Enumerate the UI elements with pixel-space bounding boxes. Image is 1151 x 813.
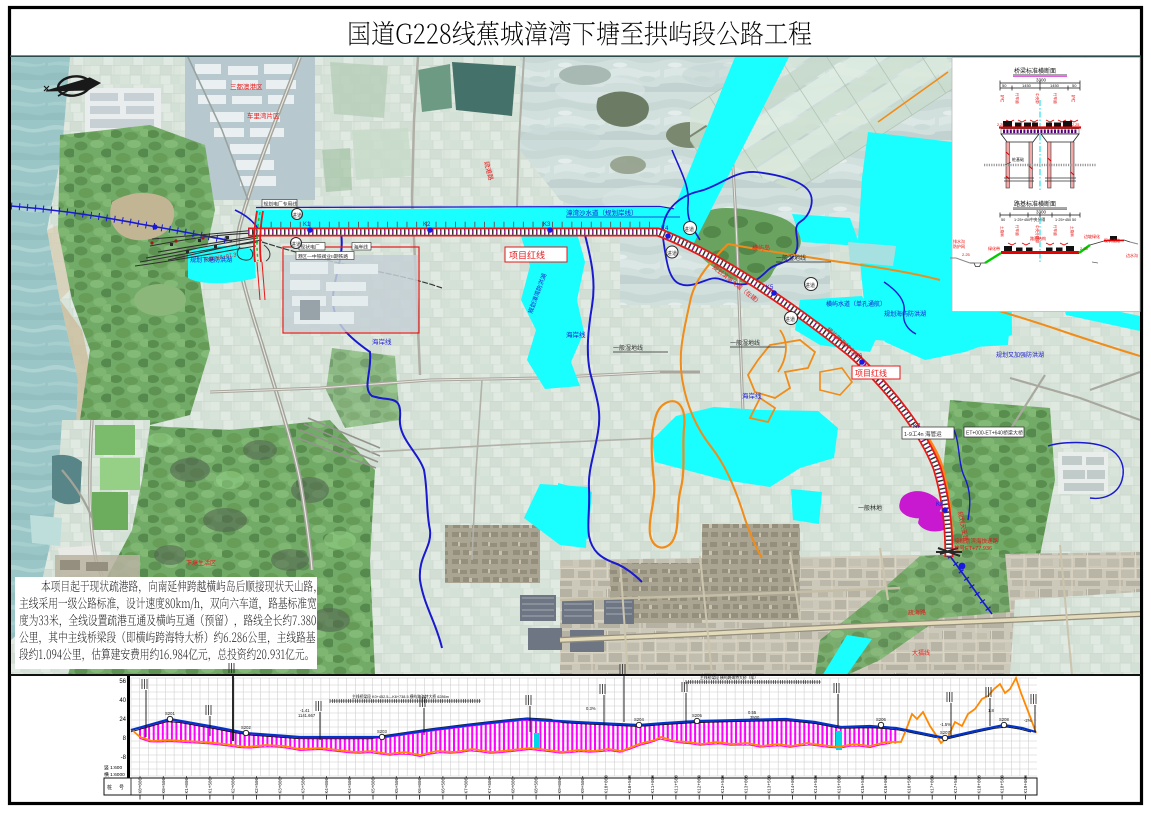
svg-text:S208: S208 [999, 717, 1009, 722]
svg-text:路基标准横断面: 路基标准横断面 [1014, 200, 1056, 208]
svg-text:主线桥梁段 横屿跨海特大桥（续）: 主线桥梁段 横屿跨海特大桥（续） [700, 675, 758, 680]
svg-text:K14+500: K14+500 [814, 775, 819, 794]
svg-text:边水沟: 边水沟 [1126, 252, 1138, 258]
svg-text:S206: S206 [876, 717, 886, 722]
svg-text:K12+000: K12+000 [698, 775, 703, 794]
svg-text:S204: S204 [634, 717, 644, 722]
svg-text:K3+000: K3+000 [278, 777, 283, 793]
svg-text:50: 50 [1072, 218, 1076, 222]
svg-text:边坡绿化: 边坡绿化 [1084, 233, 1100, 239]
svg-text:-8: -8 [121, 755, 127, 761]
svg-text:1450: 1450 [1022, 83, 1032, 88]
svg-text:K6+000: K6+000 [418, 777, 423, 793]
svg-text:1.8: 1.8 [988, 708, 994, 713]
svg-text:号: 号 [119, 785, 124, 791]
svg-text:K11+500: K11+500 [674, 775, 679, 794]
svg-text:土路肩: 土路肩 [1070, 226, 1075, 237]
svg-text:K1+000: K1+000 [185, 777, 190, 793]
svg-text:K15+500: K15+500 [861, 775, 866, 794]
svg-text:40: 40 [119, 698, 126, 704]
svg-text:中央带: 中央带 [1035, 93, 1040, 104]
svg-text:防护网: 防护网 [953, 243, 965, 249]
svg-text:K15+000: K15+000 [838, 775, 843, 794]
svg-text:-2%: -2% [1024, 718, 1032, 723]
svg-text:S203: S203 [377, 729, 387, 734]
svg-text:桥梁标准横断面: 桥梁标准横断面 [1014, 67, 1056, 75]
svg-text:K2+000: K2+000 [232, 777, 237, 793]
svg-text:S202: S202 [241, 725, 251, 730]
svg-text:K2+500: K2+500 [255, 777, 260, 793]
svg-text:K7+000: K7+000 [465, 777, 470, 793]
svg-text:K8+000: K8+000 [511, 777, 516, 793]
svg-text:K4+500: K4+500 [348, 777, 353, 793]
svg-text:竖 1:600: 竖 1:600 [104, 764, 122, 771]
svg-text:K5+500: K5+500 [395, 777, 400, 793]
svg-text:K5+000: K5+000 [372, 777, 377, 793]
svg-text:K14+000: K14+000 [791, 775, 796, 794]
svg-text:S201: S201 [165, 711, 175, 716]
svg-text:2.25: 2.25 [997, 123, 1004, 127]
svg-text:中央分隔: 中央分隔 [1030, 217, 1045, 222]
svg-text:K4+000: K4+000 [325, 777, 330, 793]
svg-text:行车道: 行车道 [1053, 225, 1058, 236]
svg-text:K16+500: K16+500 [907, 775, 912, 794]
svg-text:K11+000: K11+000 [651, 775, 656, 794]
svg-text:K18+000: K18+000 [977, 775, 982, 794]
svg-text:K9+000: K9+000 [558, 777, 563, 793]
svg-text:K0+500: K0+500 [162, 777, 167, 793]
svg-text:3500: 3500 [750, 715, 760, 720]
svg-text:K19+000: K19+000 [1024, 775, 1029, 794]
svg-text:S207: S207 [940, 730, 950, 735]
svg-text:56: 56 [119, 679, 126, 685]
svg-text:土路肩: 土路肩 [1000, 226, 1005, 237]
svg-text:护栏: 护栏 [1000, 95, 1005, 103]
svg-text:K6+500: K6+500 [441, 777, 446, 793]
svg-text:K10+000: K10+000 [605, 775, 610, 794]
svg-text:K0+000: K0+000 [139, 777, 144, 793]
svg-text:1141.667: 1141.667 [298, 713, 316, 718]
svg-text:现状道路: 现状道路 [1104, 237, 1120, 243]
svg-text:K3+500: K3+500 [302, 777, 307, 793]
svg-text:K13+000: K13+000 [744, 775, 749, 794]
svg-text:1450: 1450 [1050, 83, 1060, 88]
svg-text:K13+500: K13+500 [768, 775, 773, 794]
svg-text:K16+000: K16+000 [884, 775, 889, 794]
svg-text:桩基础: 桩基础 [1012, 156, 1024, 162]
svg-text:1·25+450: 1·25+450 [1055, 218, 1071, 222]
svg-text:2.25: 2.25 [1072, 123, 1079, 127]
svg-text:主线桥梁段 K0+452.5—K6+738.5 横屿跨海特大: 主线桥梁段 K0+452.5—K6+738.5 横屿跨海特大桥 6286m [352, 694, 449, 699]
svg-text:K7+500: K7+500 [488, 777, 493, 793]
svg-text:行车道: 行车道 [1015, 93, 1020, 104]
svg-text:K1+500: K1+500 [208, 777, 213, 793]
svg-text:路面结构: 路面结构 [1030, 235, 1046, 241]
svg-text:K12+500: K12+500 [721, 775, 726, 794]
svg-text:2.25: 2.25 [1080, 246, 1089, 251]
svg-text:K18+500: K18+500 [1001, 775, 1006, 794]
svg-text:1·25+450: 1·25+450 [1014, 218, 1030, 222]
svg-text:24: 24 [119, 717, 126, 723]
svg-text:横 1:6000: 横 1:6000 [104, 771, 125, 778]
svg-text:桩: 桩 [107, 784, 112, 791]
svg-text:K10+500: K10+500 [628, 775, 633, 794]
svg-text:行车道: 行车道 [1015, 225, 1020, 236]
svg-text:护栏: 护栏 [1071, 95, 1076, 103]
svg-text:S205: S205 [692, 713, 702, 718]
svg-text:3300: 3300 [1036, 210, 1047, 215]
svg-text:50: 50 [1002, 83, 1007, 88]
svg-text:3300: 3300 [1036, 78, 1047, 83]
svg-text:-1.5%: -1.5% [940, 722, 951, 727]
svg-text:0.3%: 0.3% [586, 706, 596, 711]
svg-text:K17+000: K17+000 [931, 775, 936, 794]
svg-text:K8+500: K8+500 [535, 777, 540, 793]
svg-text:绿化带: 绿化带 [988, 245, 1000, 251]
svg-text:行车道: 行车道 [1053, 93, 1058, 104]
svg-text:K9+500: K9+500 [581, 777, 586, 793]
svg-text:50: 50 [1072, 83, 1077, 88]
svg-text:50: 50 [1001, 218, 1005, 222]
svg-text:K17+500: K17+500 [954, 775, 959, 794]
svg-text:2.25: 2.25 [962, 252, 971, 257]
